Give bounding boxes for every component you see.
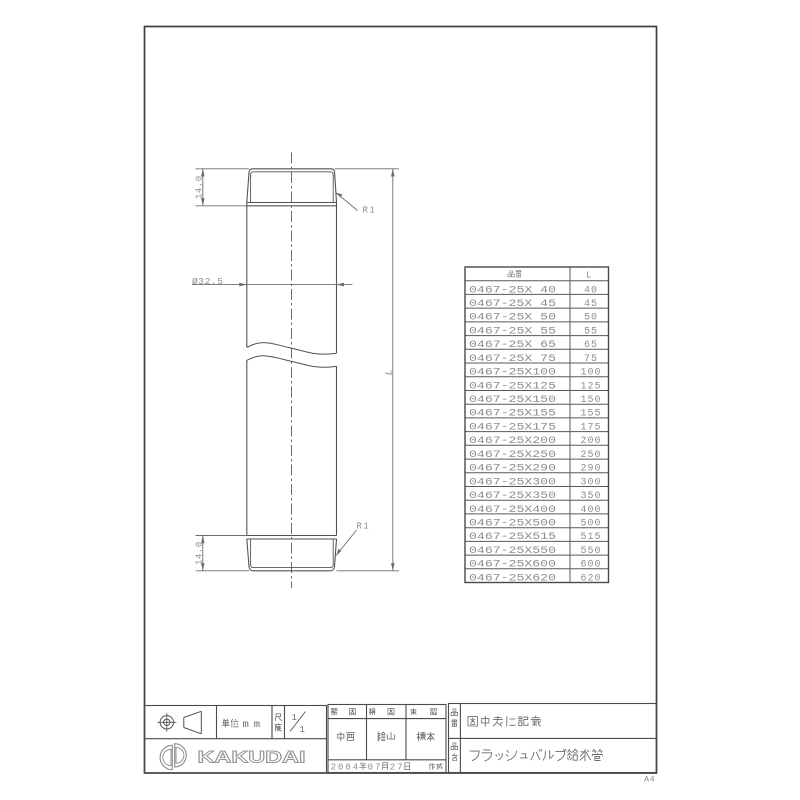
- svg-text:100: 100: [580, 368, 601, 379]
- svg-text:250: 250: [580, 450, 601, 461]
- svg-text:0: 0: [345, 762, 350, 772]
- svg-text:7: 7: [375, 762, 380, 772]
- svg-text:0467-25X250: 0467-25X250: [469, 450, 556, 461]
- svg-text:0467-25X 75: 0467-25X 75: [469, 354, 556, 365]
- svg-text:A4: A4: [644, 775, 655, 785]
- svg-text:0467-25X175: 0467-25X175: [469, 423, 556, 434]
- svg-text:R1: R1: [363, 206, 377, 216]
- svg-text:550: 550: [580, 546, 601, 557]
- svg-text:7: 7: [397, 762, 402, 772]
- svg-text:0467-25X 65: 0467-25X 65: [469, 340, 556, 351]
- svg-text:0467-25X600: 0467-25X600: [469, 560, 556, 571]
- svg-text:55: 55: [584, 326, 598, 337]
- svg-text:1: 1: [292, 713, 297, 723]
- svg-text:400: 400: [580, 505, 601, 516]
- svg-text:0467-25X290: 0467-25X290: [469, 464, 556, 475]
- svg-text:0467-25X 45: 0467-25X 45: [469, 299, 556, 310]
- svg-text:1: 1: [300, 725, 305, 735]
- svg-text:2: 2: [390, 762, 395, 772]
- svg-text:290: 290: [580, 464, 601, 475]
- svg-text:0467-25X 40: 0467-25X 40: [469, 285, 556, 296]
- svg-text:0467-25X550: 0467-25X550: [469, 546, 556, 557]
- svg-text:600: 600: [580, 560, 601, 571]
- svg-text:R1: R1: [357, 522, 371, 532]
- svg-text:L: L: [383, 369, 395, 375]
- svg-text:0467-25X125: 0467-25X125: [469, 381, 556, 392]
- svg-text:200: 200: [580, 436, 601, 447]
- svg-text:125: 125: [580, 381, 601, 392]
- svg-text:0467-25X 50: 0467-25X 50: [469, 313, 556, 324]
- svg-text:175: 175: [580, 423, 601, 434]
- svg-text:0467-25X100: 0467-25X100: [469, 368, 556, 379]
- svg-text:0: 0: [338, 762, 343, 772]
- svg-text:0467-25X155: 0467-25X155: [469, 409, 556, 420]
- svg-text:0467-25X150: 0467-25X150: [469, 395, 556, 406]
- svg-text:620: 620: [580, 573, 601, 584]
- svg-text:40: 40: [584, 285, 598, 296]
- svg-text:300: 300: [580, 477, 601, 488]
- svg-text:14.0: 14.0: [195, 175, 205, 199]
- svg-text:515: 515: [580, 532, 601, 543]
- svg-text:mm: mm: [243, 719, 266, 731]
- svg-text:0467-25X300: 0467-25X300: [469, 477, 556, 488]
- svg-text:2: 2: [331, 762, 336, 772]
- svg-text:KAKUDAI: KAKUDAI: [198, 749, 306, 767]
- svg-text:45: 45: [584, 299, 598, 310]
- svg-text:Ø32.5: Ø32.5: [192, 276, 224, 287]
- svg-text:L: L: [586, 270, 591, 280]
- svg-text:0467-25X400: 0467-25X400: [469, 505, 556, 516]
- svg-text:4: 4: [353, 762, 358, 772]
- svg-text:0467-25X515: 0467-25X515: [469, 532, 556, 543]
- svg-text:65: 65: [584, 340, 598, 351]
- svg-text:0467-25X500: 0467-25X500: [469, 519, 556, 530]
- svg-text:0: 0: [368, 762, 373, 772]
- svg-text:75: 75: [584, 354, 598, 365]
- svg-text:150: 150: [580, 395, 601, 406]
- svg-text:0467-25X200: 0467-25X200: [469, 436, 556, 447]
- svg-text:0467-25X620: 0467-25X620: [469, 573, 556, 584]
- svg-text:155: 155: [580, 409, 601, 420]
- svg-text:14.0: 14.0: [195, 541, 205, 565]
- svg-text:350: 350: [580, 491, 601, 502]
- svg-text:0467-25X350: 0467-25X350: [469, 491, 556, 502]
- svg-text:50: 50: [584, 313, 598, 324]
- svg-text:500: 500: [580, 519, 601, 530]
- svg-text:0467-25X 55: 0467-25X 55: [469, 326, 556, 337]
